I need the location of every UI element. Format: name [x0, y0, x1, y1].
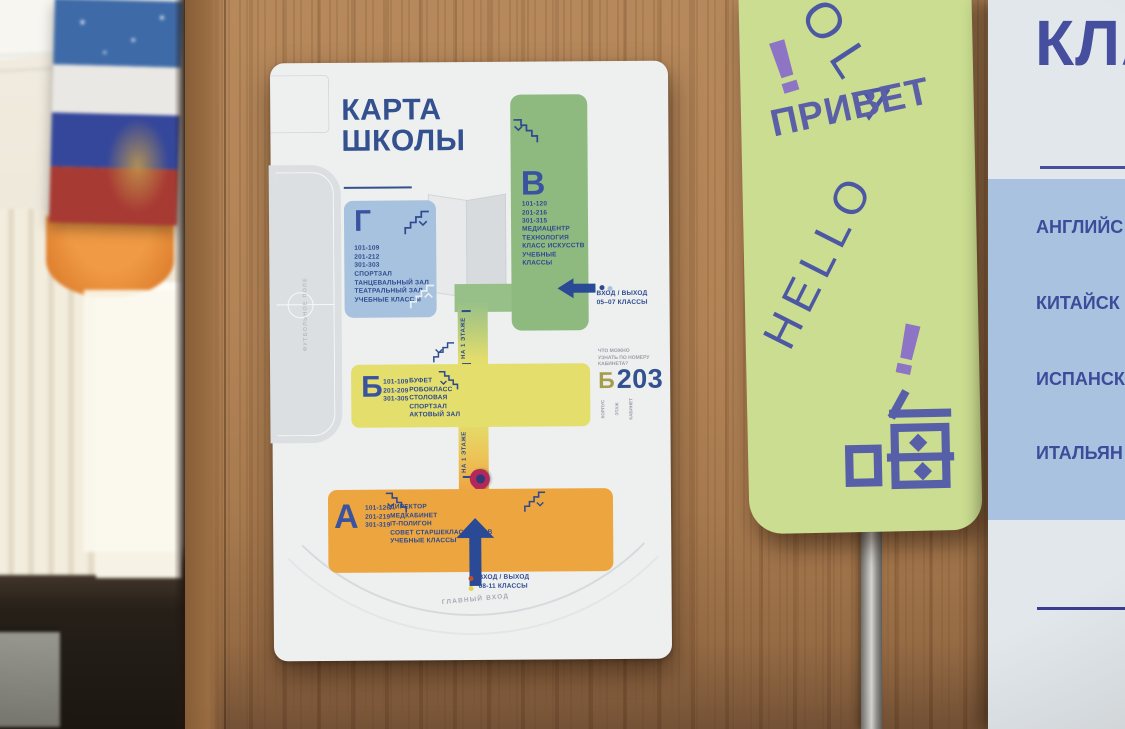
block-g-letter: Г: [354, 207, 371, 237]
stairs-icon: [384, 490, 408, 519]
language-item: КИТАЙСК: [1036, 293, 1120, 314]
basketball-court-outline: [270, 75, 329, 133]
block-v-letter: В: [521, 166, 546, 200]
entrance-dot-orange: [469, 576, 474, 581]
photo-scene: ФУТБОЛЬНОЕ ПОЛЕ НА 1 ЭТАЖЕ НА 1 ЭТАЖЕ В …: [0, 0, 1125, 729]
metal-strip: [861, 520, 882, 729]
language-item: ИТАЛЬЯН: [1036, 443, 1123, 464]
sheer-curtain: [84, 290, 178, 552]
hello-text: HELLO: [755, 164, 882, 355]
chinese-hi-glyph: [843, 382, 958, 514]
flag-white-stripe: [52, 64, 181, 115]
corridor-floor-label: НА 1 ЭТАЖЕ: [461, 308, 469, 368]
block-b-letter: Б: [361, 373, 383, 403]
room-code-number: 203: [617, 364, 664, 395]
room-code: Б203: [598, 364, 663, 395]
entrance-top-label: ВХОД / ВЫХОД 05–07 КЛАССЫ: [597, 290, 648, 308]
block-b-rooms: 101-109 201-209 301-305: [383, 378, 408, 404]
divider-line: [1037, 607, 1125, 610]
corridor-floor-label: НА 1 ЭТАЖЕ: [461, 422, 469, 482]
room-code-building: Б: [598, 367, 615, 394]
russian-flag: [49, 0, 183, 226]
room-code-part-label: КОРПУС: [600, 394, 606, 424]
divider-line: [1040, 166, 1125, 169]
flag-star-band: [53, 0, 183, 68]
language-poster: КЛА АНГЛИЙС КИТАЙСК ИСПАНСК ИТАЛЬЯН: [988, 0, 1125, 729]
entrance-bottom-label: ВХОД / ВЫХОД 08-11 КЛАССЫ: [478, 574, 529, 592]
room-code-part-label: ЭТАЖ: [614, 394, 620, 424]
flag-coat-of-arms: [105, 118, 169, 214]
block-g: Г 101-109 201-212 301-303 СПОРТЗАЛ ТАНЦЕ…: [344, 200, 437, 318]
poster-title: КАРТА ШКОЛЫ: [341, 94, 465, 157]
block-v-facilities: МЕДИАЦЕНТР ТЕХНОЛОГИЯ КЛАСС ИСКУССТВ УЧЕ…: [522, 225, 588, 268]
stairs-icon: [523, 489, 547, 518]
block-v-rooms: 101-120 201-216 301-315: [522, 200, 547, 226]
entrance-dot-yellow: [469, 586, 474, 591]
language-panel: АНГЛИЙС КИТАЙСК ИСПАНСК ИТАЛЬЯН: [988, 179, 1125, 520]
room-code-part-label: КАБИНЕТ: [628, 394, 634, 424]
greeting-poster: OLA ! ПРИВЕТ HELLO !: [738, 0, 982, 534]
block-g-rooms: 101-109 201-212 301-303: [354, 245, 379, 271]
block-b: Б 101-109 201-209 301-305 БУФЕТ РОБОКЛАС…: [351, 363, 590, 428]
stairs-icon: [408, 282, 436, 315]
language-item: АНГЛИЙС: [1036, 217, 1123, 238]
exclamation-bottom: !: [883, 306, 934, 393]
language-item: ИСПАНСК: [1036, 369, 1125, 390]
stairs-icon: [437, 369, 459, 396]
orange-curtain-swag: [46, 216, 174, 298]
block-a-letter: А: [334, 500, 359, 534]
left-arrow-icon: [557, 277, 595, 304]
stairs-icon: [510, 117, 540, 150]
corridor-background: [0, 0, 192, 729]
school-map-poster: ФУТБОЛЬНОЕ ПОЛЕ НА 1 ЭТАЖЕ НА 1 ЭТАЖЕ В …: [270, 61, 672, 662]
language-poster-title: КЛА: [1035, 6, 1125, 80]
stairs-icon: [402, 208, 432, 241]
pin-inner-dot: [473, 473, 486, 486]
floor-tile: [0, 632, 60, 727]
